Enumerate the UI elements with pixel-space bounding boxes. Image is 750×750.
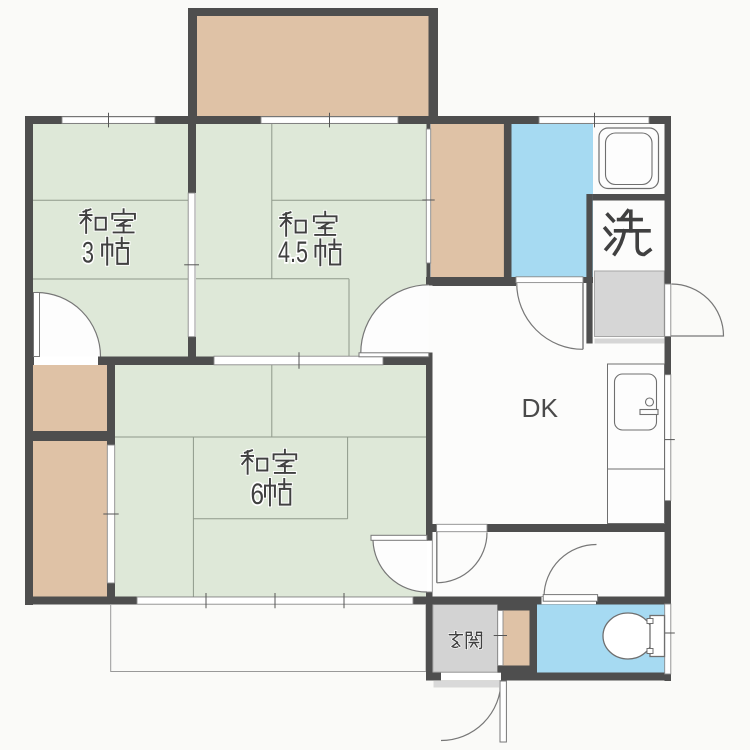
svg-text:3: 3 bbox=[82, 236, 94, 269]
svg-text:DK: DK bbox=[522, 393, 559, 423]
svg-text:4.5: 4.5 bbox=[278, 236, 308, 269]
svg-text:6: 6 bbox=[250, 478, 264, 511]
